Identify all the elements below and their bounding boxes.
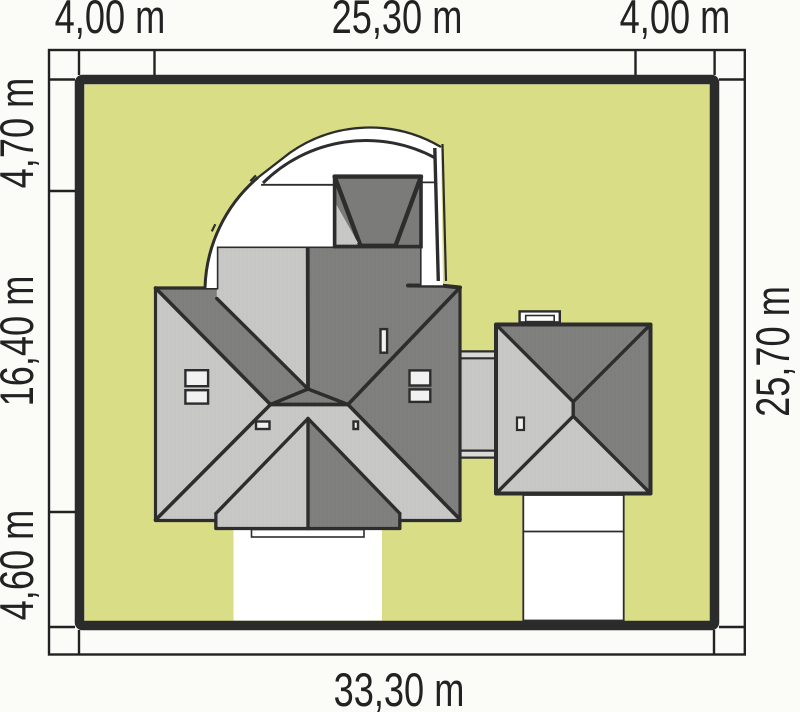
- svg-text:25,70 m: 25,70 m: [746, 286, 799, 417]
- svg-text:33,30 m: 33,30 m: [334, 663, 465, 712]
- svg-text:4,00 m: 4,00 m: [620, 0, 731, 43]
- svg-text:4,60 m: 4,60 m: [0, 510, 43, 621]
- svg-text:4,70 m: 4,70 m: [0, 78, 43, 189]
- svg-text:4,00 m: 4,00 m: [55, 0, 166, 43]
- svg-text:25,30 m: 25,30 m: [332, 0, 463, 43]
- svg-text:16,40 m: 16,40 m: [0, 276, 43, 407]
